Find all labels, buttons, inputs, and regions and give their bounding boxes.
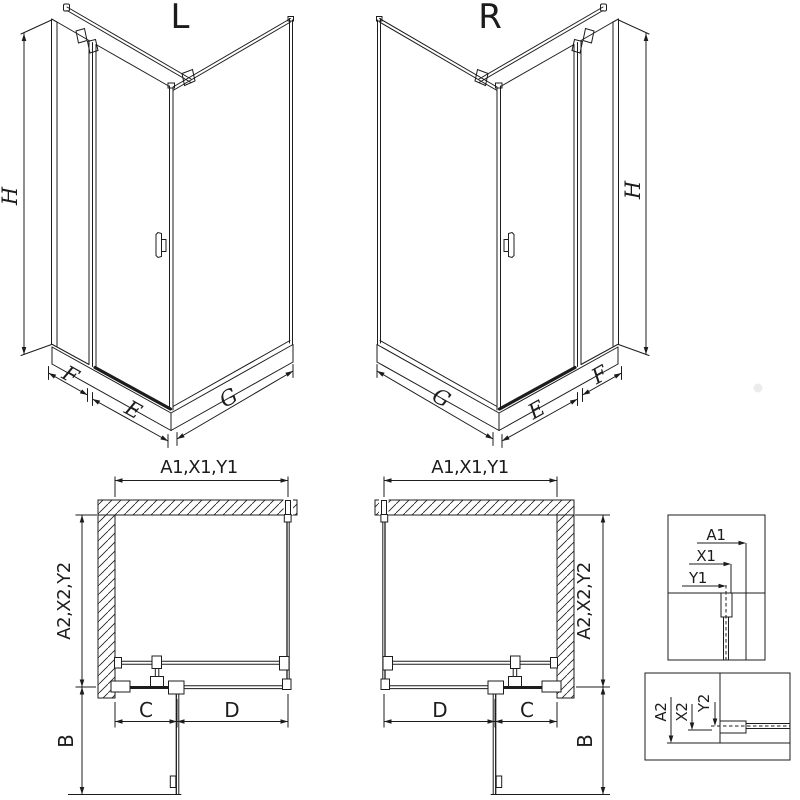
detail2-label-a2: A2 (652, 702, 670, 721)
plan-right-dim-D: D (432, 698, 447, 722)
plan-left-dim-side: A2,X2,Y2 (54, 562, 75, 639)
watermark-smudge (754, 384, 763, 393)
shower-enclosure-drawing: A1 X1 Y1 A2 X2 Y2 L H F E G R (0, 0, 800, 800)
iso-right-dim-F: F (587, 360, 614, 389)
detail-vertical-section: A2 X2 Y2 (645, 673, 790, 760)
plan-right-dim-C: C (520, 698, 534, 722)
plan-view-geometry (111, 477, 291, 795)
iso-right-dim-E: E (523, 396, 549, 425)
variant-title-left: L (171, 0, 190, 37)
plan-left-dim-C: C (139, 698, 153, 722)
plan-right-dim-B: B (573, 734, 597, 748)
plan-right-dim-top: A1,X1,Y1 (431, 457, 508, 478)
iso-left-dim-H: H (0, 186, 22, 206)
detail-horizontal-section: A1 X1 Y1 (668, 515, 765, 660)
detail1-label-x1: X1 (696, 547, 715, 565)
iso-right-dim-H: H (621, 180, 645, 200)
iso-left-dim-E: E (120, 395, 146, 424)
detail1-label-a1: A1 (706, 526, 725, 544)
plan-left-dim-D: D (224, 698, 239, 722)
plan-left-side-dimension (68, 515, 179, 795)
variant-title-right: R (478, 0, 502, 37)
iso-right-dim-G: G (428, 383, 454, 412)
plan-right-side-dimension (493, 515, 610, 795)
technical-drawing-page: A1 X1 Y1 A2 X2 Y2 L H F E G R (0, 0, 800, 800)
detail2-label-y2: Y2 (695, 694, 713, 713)
plan-right-dim-side: A2,X2,Y2 (574, 562, 595, 639)
plan-left-dim-B: B (54, 734, 78, 748)
detail2-label-x2: X2 (673, 702, 691, 721)
iso-left-dim-F: F (57, 360, 84, 389)
detail1-label-y1: Y1 (688, 569, 707, 587)
iso-left-dim-G: G (215, 383, 241, 412)
plan-view-geometry-mirrored (381, 477, 561, 795)
plan-left-dim-top: A1,X1,Y1 (160, 457, 237, 478)
plan-walls (98, 500, 574, 699)
